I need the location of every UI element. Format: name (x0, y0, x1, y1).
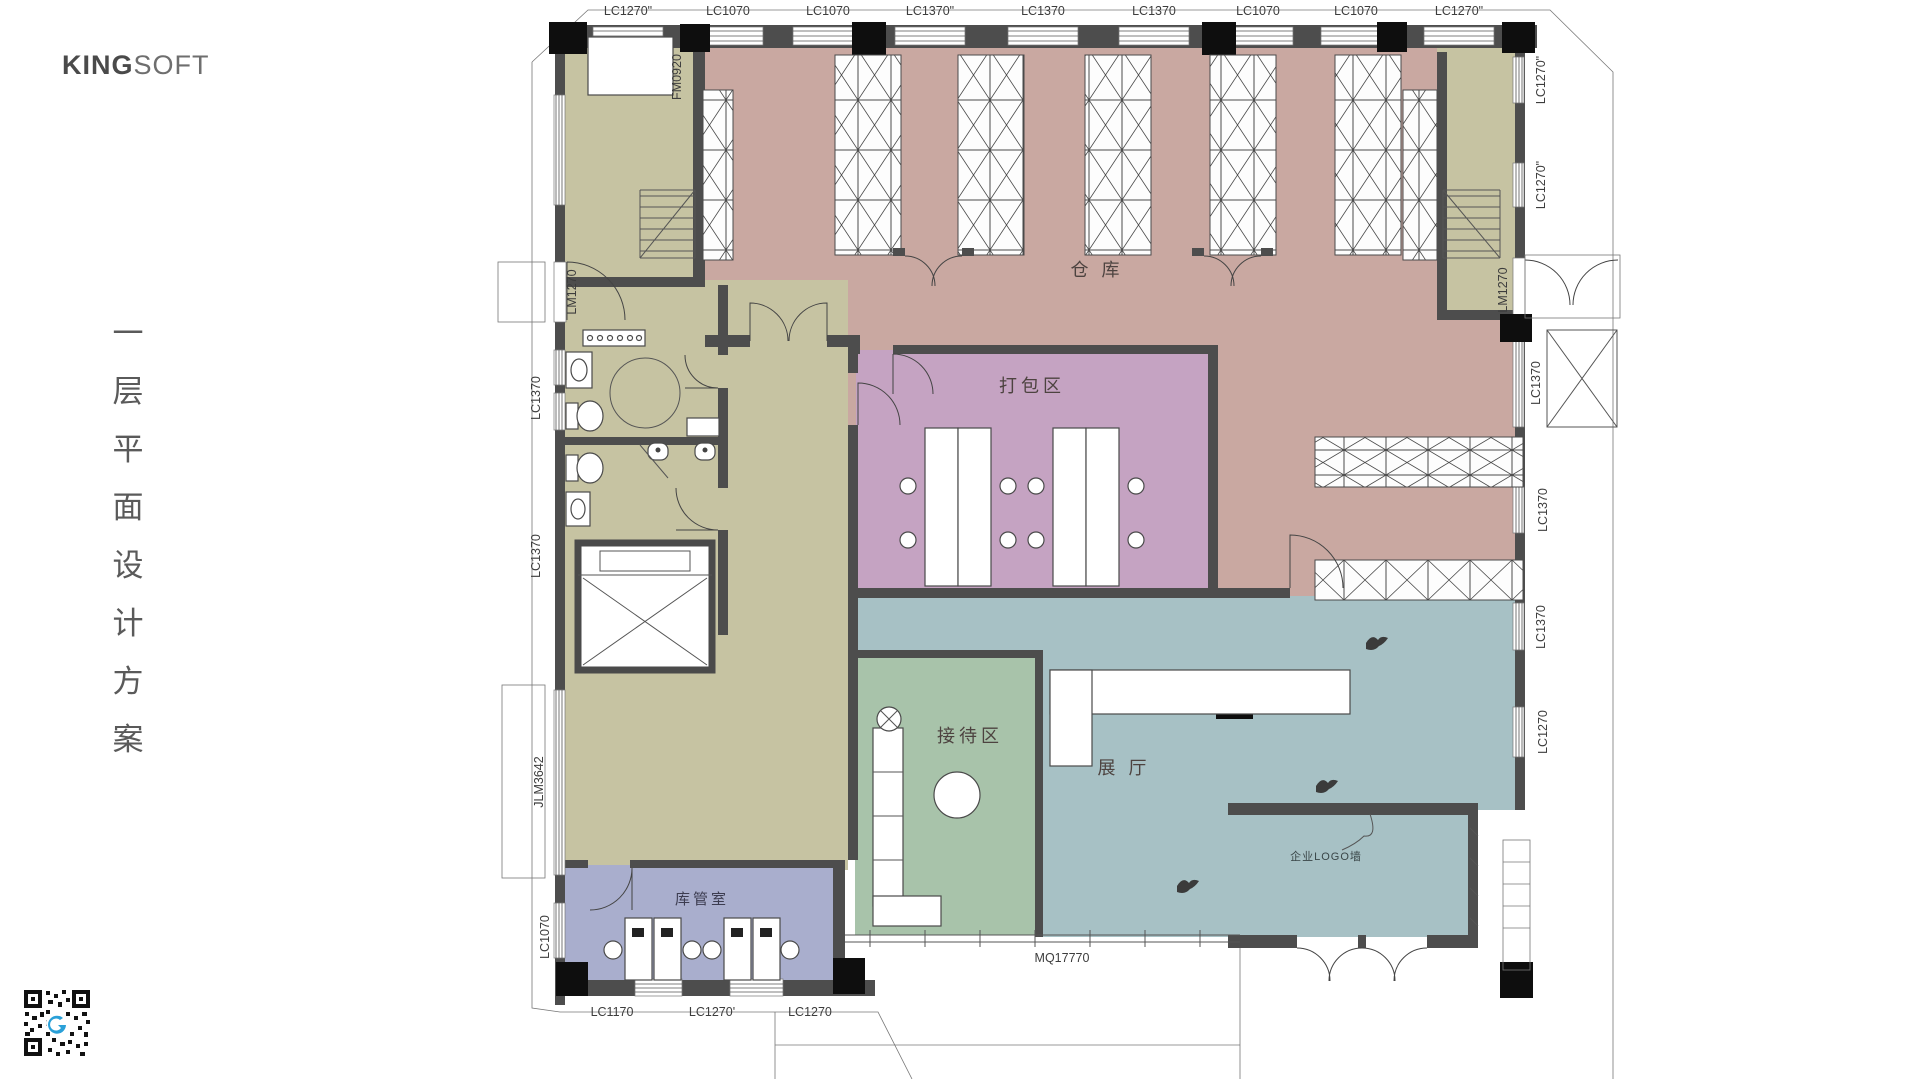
room-label-warehouse: 仓 库 (1070, 260, 1123, 280)
curtain-wall-label: MQ17770 (1035, 951, 1090, 965)
dim-label: LC1270" (1534, 161, 1548, 209)
dim-label: JLM3642 (532, 756, 546, 807)
dim-label: LC1370 (529, 534, 543, 578)
dim-label: LC1370" (906, 4, 954, 18)
dim-label: LC1370 (529, 376, 543, 420)
dim-label: LC1370 (1529, 361, 1543, 405)
room-label-exhibition: 展 厅 (1097, 758, 1150, 778)
dim-label: LC1370 (1021, 4, 1065, 18)
room-stair-ne (1437, 25, 1523, 315)
dimension-labels-top: LC1270" LC1070 LC1070 LC1370" LC1370 LC1… (604, 4, 1483, 18)
room-label-reception: 接待区 (937, 726, 1003, 746)
fire-door-label: FM0920 (670, 54, 684, 100)
dim-label: LC1270" (1534, 56, 1548, 104)
room-label-storekeeper: 库管室 (675, 891, 729, 908)
nw-closet (588, 37, 673, 95)
dim-label: LC1370 (1132, 4, 1176, 18)
dim-label: LC1070 (806, 4, 850, 18)
elevator (578, 543, 712, 670)
room-storekeeper (565, 865, 835, 987)
dim-label: LM1270 (565, 269, 579, 314)
room-exhibition-lower (1040, 810, 1478, 937)
dim-label: LC1070 (538, 915, 552, 959)
dim-label: LM1270 (1496, 267, 1510, 312)
dim-label: LC1170 (591, 1005, 634, 1019)
dim-label: LC1070 (1236, 4, 1280, 18)
floor-plan: FM0920 (0, 0, 1920, 1079)
dim-label: LC1070 (706, 4, 750, 18)
dim-label: LC1270" (1435, 4, 1483, 18)
windows-top (593, 27, 1494, 45)
dim-label: LC1270" (604, 4, 652, 18)
room-label-packing: 打包区 (999, 376, 1065, 396)
dim-label: LC1370 (1534, 605, 1548, 649)
room-label-logo-wall: 企业LOGO墙 (1290, 849, 1362, 863)
dim-label: LC1270 (788, 1005, 832, 1019)
dim-label: LC1370 (1536, 488, 1550, 532)
dim-label: LC1270 (1536, 710, 1550, 754)
dim-label: LC1070 (1334, 4, 1378, 18)
dim-label: LC1270' (689, 1005, 735, 1019)
